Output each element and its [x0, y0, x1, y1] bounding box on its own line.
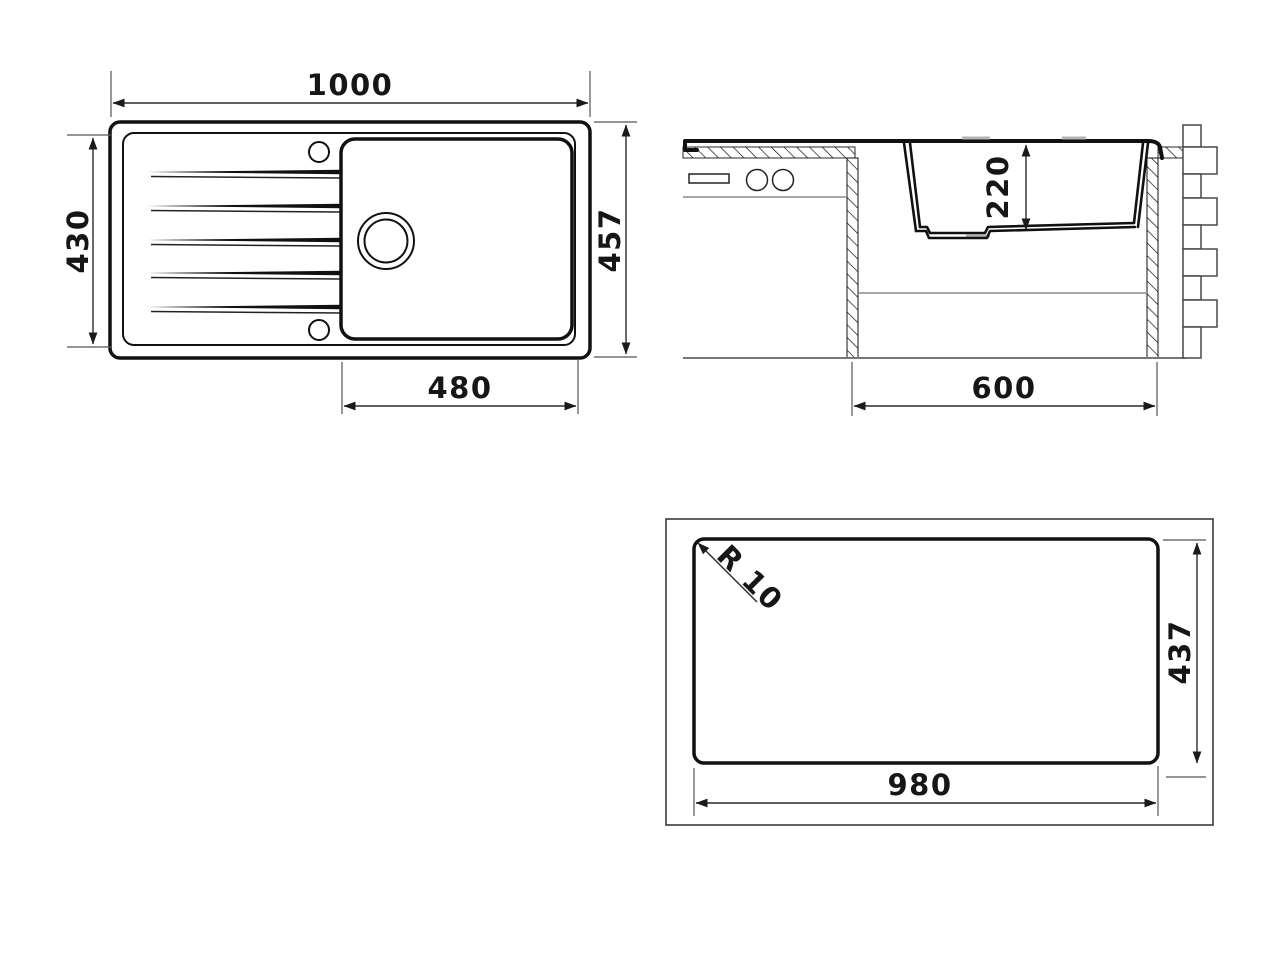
brick — [1183, 249, 1217, 276]
cabinet-side-panel-right — [1147, 158, 1158, 358]
dim-cutout-depth: 437 — [1163, 540, 1206, 777]
dim-cutout-width: 980 — [694, 766, 1158, 816]
dim-label-cutout-width: 980 — [887, 768, 952, 802]
brick — [1183, 198, 1217, 225]
dim-bowl-depth: 220 — [981, 145, 1026, 230]
section-view: 220 600 — [683, 125, 1217, 416]
brick — [1183, 300, 1217, 327]
dim-overall-width: 1000 — [111, 68, 590, 117]
brick — [1183, 225, 1201, 249]
dim-overall-depth: 457 — [593, 122, 637, 357]
bowl-wall-right-inner — [1134, 143, 1143, 223]
dim-label-bowl-width: 480 — [427, 371, 492, 405]
plan-view: 1000 430 457 480 — [61, 68, 637, 414]
dim-label-cutout-depth: 437 — [1163, 619, 1197, 684]
dim-label-drainboard-depth: 430 — [61, 208, 95, 273]
dim-bowl-width: 480 — [342, 360, 578, 414]
dim-label-overall-depth: 457 — [593, 207, 627, 272]
technical-drawing-canvas: 1000 430 457 480 — [0, 0, 1280, 960]
dim-label-corner-radius: R 10 — [710, 538, 790, 618]
brick — [1183, 125, 1201, 147]
dim-corner-radius: R 10 — [698, 538, 790, 618]
brick — [1183, 276, 1201, 300]
brick — [1183, 147, 1217, 174]
dim-drainboard-depth: 430 — [61, 135, 112, 347]
dim-label-bowl-depth: 220 — [981, 154, 1015, 219]
sink-drawing-svg: 1000 430 457 480 — [0, 0, 1280, 960]
brick — [1183, 327, 1201, 358]
dim-label-cabinet-width: 600 — [971, 371, 1036, 405]
countertop-section-left — [683, 147, 855, 158]
dim-label-overall-width: 1000 — [307, 68, 394, 102]
knob-circle — [747, 170, 768, 191]
drawer-handle — [689, 174, 729, 183]
cutout-view: R 10 437 980 — [666, 519, 1213, 825]
knob-circle — [773, 170, 794, 191]
tap-hole-bottom — [309, 320, 329, 340]
bowl-outline — [341, 139, 572, 339]
brick — [1183, 174, 1201, 198]
brick-wall — [1183, 125, 1217, 358]
cabinet-side-panel-left — [847, 158, 858, 358]
dim-cabinet-width: 600 — [852, 362, 1157, 416]
tap-hole-top — [309, 142, 329, 162]
